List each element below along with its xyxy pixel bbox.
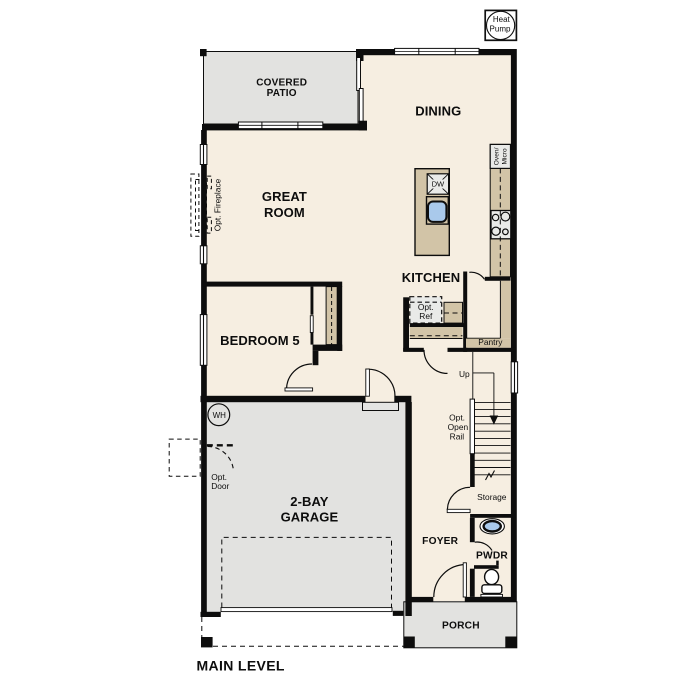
svg-text:2-BAY: 2-BAY xyxy=(290,494,329,509)
svg-text:Opt.: Opt. xyxy=(449,412,465,422)
svg-text:PWDR: PWDR xyxy=(476,551,508,562)
svg-text:FOYER: FOYER xyxy=(422,536,459,547)
svg-text:Pump: Pump xyxy=(490,24,511,33)
svg-text:DW: DW xyxy=(432,180,445,189)
svg-text:PATIO: PATIO xyxy=(267,88,297,99)
svg-text:Up: Up xyxy=(459,369,470,379)
svg-text:KITCHEN: KITCHEN xyxy=(402,270,460,285)
svg-text:ROOM: ROOM xyxy=(264,205,305,220)
svg-text:Heat: Heat xyxy=(493,15,511,24)
svg-text:WH: WH xyxy=(213,411,227,420)
svg-text:Storage: Storage xyxy=(477,492,507,502)
svg-text:Ref: Ref xyxy=(419,311,433,321)
svg-text:MAIN LEVEL: MAIN LEVEL xyxy=(197,658,285,674)
svg-text:Opt. Fireplace: Opt. Fireplace xyxy=(213,178,223,231)
svg-text:Door: Door xyxy=(211,481,229,491)
svg-text:BEDROOM 5: BEDROOM 5 xyxy=(220,333,300,348)
svg-text:COVERED: COVERED xyxy=(256,77,307,88)
svg-text:Micro: Micro xyxy=(501,148,508,164)
svg-text:PORCH: PORCH xyxy=(442,621,480,632)
svg-text:Oven/: Oven/ xyxy=(494,147,501,165)
svg-text:GARAGE: GARAGE xyxy=(281,510,339,525)
svg-text:Pantry: Pantry xyxy=(478,337,503,347)
svg-text:Rail: Rail xyxy=(450,431,465,441)
svg-text:DINING: DINING xyxy=(415,103,461,118)
svg-text:GREAT: GREAT xyxy=(262,189,307,204)
